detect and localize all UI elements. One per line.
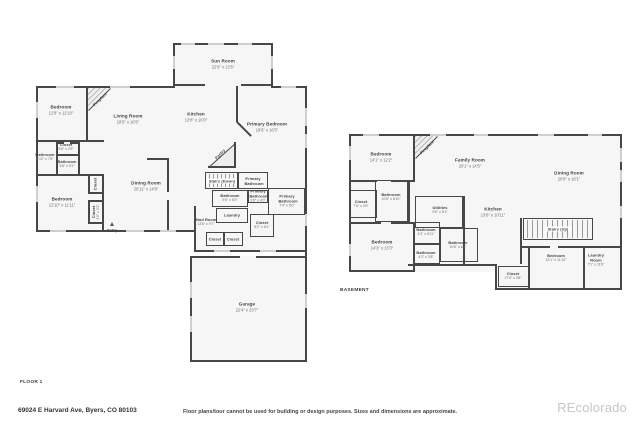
room-dims: 7'6" x 3'6" <box>353 204 368 209</box>
floor1-main-fill <box>36 86 307 232</box>
wall-segment <box>305 254 307 362</box>
room-name: Laundry <box>224 212 240 217</box>
room-label-garage: Garage22'4" x 23'7" <box>236 301 258 312</box>
floor1-title: FLOOR 1 <box>20 380 43 385</box>
window-marker <box>214 250 230 252</box>
window-marker <box>305 214 307 226</box>
wall-segment <box>495 264 497 290</box>
room-name: Closet <box>209 236 222 241</box>
wall-segment <box>234 142 236 168</box>
room-dims: 9'6" x 8'1" <box>432 210 447 215</box>
room-label-primary-bedroom: Primary Bedroom19'6" x 16'5" <box>247 121 287 132</box>
window-marker <box>208 43 224 45</box>
room-label-bedroom: Bedroom14'3" x 13'3" <box>371 239 393 250</box>
door-opening <box>240 256 256 258</box>
room-name: Closet <box>227 236 240 241</box>
room-name: Primary Bathroom <box>245 176 262 186</box>
wall-segment <box>583 246 585 290</box>
address-text: 69024 E Harvard Ave, Byers, CO 80103 <box>18 407 137 414</box>
room-label-bedroom-2: Bedroom12'10" x 11'11" <box>49 196 75 207</box>
window-marker <box>160 230 176 232</box>
window-marker <box>430 134 446 136</box>
room-dims: 12'8" x 12'10" <box>49 110 74 115</box>
room-dims: 22'9" x 13'5" <box>211 64 235 69</box>
wall-segment <box>408 180 410 224</box>
wall-segment <box>349 270 415 272</box>
room-dims: 12'1" x 11'10" <box>546 258 567 263</box>
wall-segment <box>190 256 192 362</box>
window-marker <box>305 108 307 126</box>
room-dims: 17'0" x 3'8" <box>504 276 521 281</box>
room-dims: 8'2" x 6'1" <box>254 225 269 230</box>
window-marker <box>620 206 622 218</box>
room-dims: 7'4" x 8'0" <box>279 204 296 209</box>
wall-segment <box>208 166 236 168</box>
room-dims: 13'8" x 16'0" <box>185 117 207 122</box>
wall-segment <box>36 174 104 176</box>
window-marker <box>238 43 252 45</box>
room-label-bathroom: Bathroom9'6" x 6'0" <box>220 193 239 203</box>
room-label-utilities: Utilities9'6" x 8'1" <box>432 205 447 215</box>
window-marker <box>271 56 273 69</box>
room-label-closet: Closet17'0" x 3'8" <box>504 271 521 281</box>
window-marker <box>620 148 622 162</box>
wall-segment <box>88 200 104 202</box>
room-name: Laundry Room <box>588 253 605 263</box>
room-dims: 22'4" x 23'7" <box>236 307 258 312</box>
wall-segment <box>56 154 78 156</box>
wall-segment <box>194 250 307 252</box>
wall-segment <box>78 142 80 176</box>
window-marker <box>190 282 192 298</box>
window-marker <box>56 86 74 88</box>
room-dims: 12'10" x 11'11" <box>49 202 75 207</box>
window-marker <box>173 56 175 69</box>
room-name: Stairs (Down) <box>209 178 235 183</box>
window-marker <box>588 134 602 136</box>
wall-segment <box>520 218 522 264</box>
room-dims: 20'8" x 18'1" <box>554 176 584 181</box>
room-dims: 14'1" x 12'2" <box>370 157 392 162</box>
window-marker <box>126 230 144 232</box>
room-name: Primary Bathroom <box>250 189 267 199</box>
room-label-bedroom: Bedroom12'1" x 11'10" <box>546 253 567 263</box>
room-name: Entry <box>107 227 117 232</box>
wall-segment <box>88 200 90 224</box>
room-dims: 7'1" x 11'8" <box>588 263 605 268</box>
room-label-bathroom: Bathroom5'10" x 7'8" <box>35 152 54 162</box>
room-label-mud-room: Mud Room13'6" x 9'7" <box>196 217 217 227</box>
room-dims: 20'11" x 14'8" <box>131 186 161 191</box>
room-name: Primary Bathroom <box>279 194 296 204</box>
room-label-laundry-room: Laundry Room7'1" x 11'8" <box>588 253 605 268</box>
room-dims: 13'6" x 9'7" <box>196 222 217 227</box>
wall-segment <box>520 246 550 248</box>
room-dims: 19'6" x 16'5" <box>247 127 287 132</box>
room-dims: 4'2" x 6'11" <box>416 232 435 237</box>
room-label-living-room: Living Room18'5" x 16'5" <box>114 113 143 124</box>
room-label-dining-room: Dining Room20'8" x 18'1" <box>554 170 584 181</box>
window-marker <box>50 230 66 232</box>
wall-segment <box>391 222 415 224</box>
window-marker <box>349 244 351 256</box>
wall-segment <box>413 134 415 180</box>
wall-segment <box>236 86 238 122</box>
room-label-stairs-down: Stairs (Down) <box>207 178 237 183</box>
wall-segment <box>88 192 104 194</box>
window-marker <box>110 86 130 88</box>
room-label-primary-bathroom: Primary Bathroom7'4" x 8'0" <box>279 194 296 209</box>
room-label-closet: Closet8'2" x 6'1" <box>254 220 269 230</box>
room-label-laundry: Laundry <box>224 212 240 217</box>
wall-segment <box>147 158 169 160</box>
room-dims: 5'8" x 5'1" <box>57 164 76 169</box>
wall-segment <box>194 206 196 252</box>
wall-segment <box>167 200 169 232</box>
room-label-sun-room: Sun Room22'9" x 13'5" <box>211 58 235 69</box>
window-marker <box>305 134 307 148</box>
room-dims: 5'10" x 7'8" <box>35 157 54 162</box>
basement-title: BASEMENT <box>340 288 369 293</box>
room-label-entry: Entry <box>107 227 117 232</box>
floorplan-canvas: Sun Room22'9" x 13'5" Bedroom12'8" x 12'… <box>0 0 640 426</box>
window-marker <box>281 86 296 88</box>
room-label-closet: Closet4'0" x 2'2" <box>91 204 101 219</box>
room-label-closet: Closet <box>92 178 97 191</box>
room-dims: 5'8" x 2'5" <box>58 147 73 152</box>
entry-marker-icon <box>110 222 114 226</box>
wall-segment <box>86 86 88 142</box>
room-dims: 13'8" x 10'11" <box>481 212 505 217</box>
room-dims: 10'8" x 8'10" <box>381 197 400 202</box>
room-label-closet: Closet <box>209 236 222 241</box>
room-label-closet: Closet5'8" x 2'5" <box>58 142 73 152</box>
room-label-closet: Closet <box>227 236 240 241</box>
room-name: Stairs (Up) <box>548 226 569 231</box>
room-label-bathroom: Bathroom4'2" x 3'8" <box>416 250 435 260</box>
room-label-bathroom: Bathroom5'8" x 5'1" <box>57 159 76 169</box>
recolorado-watermark: REcolorado <box>557 400 627 415</box>
room-label-closet: Closet7'6" x 3'6" <box>353 199 368 209</box>
window-marker <box>260 250 276 252</box>
wall-segment <box>190 360 307 362</box>
room-dims: 4'0" x 2'2" <box>96 204 101 219</box>
wall-segment <box>167 158 169 192</box>
room-label-bathroom: Bathroom4'2" x 6'11" <box>416 227 435 237</box>
room-name: Closet <box>92 178 97 191</box>
wall-segment <box>88 222 104 224</box>
window-marker <box>538 134 554 136</box>
room-label-primary-bathroom: Primary Bathroom9'6" x 4'0" <box>250 189 267 204</box>
window-marker <box>36 186 38 202</box>
window-marker <box>349 146 351 160</box>
window-marker <box>620 170 622 182</box>
window-marker <box>36 102 38 118</box>
room-label-primary-bathroom: Primary Bathroom <box>245 176 262 186</box>
wall-segment <box>241 84 273 86</box>
room-label-dining-room: Dining Room20'11" x 14'8" <box>131 180 161 191</box>
wall-segment <box>408 264 497 266</box>
room-label-stairs-up: Stairs (Up) <box>546 226 571 231</box>
window-marker <box>190 316 192 332</box>
wall-segment <box>495 288 622 290</box>
room-dims: 9'6" x 6'0" <box>220 198 239 203</box>
room-label-kitchen: Kitchen13'8" x 16'0" <box>185 111 207 122</box>
room-label-bathroom: Bathroom10'8" x 6'3" <box>448 240 467 250</box>
room-label-bedroom-1: Bedroom12'8" x 12'10" <box>49 104 74 115</box>
wall-segment <box>349 180 377 182</box>
disclaimer-text: Floor plans/tour cannot be used for buil… <box>183 409 457 415</box>
room-dims: 10'8" x 6'3" <box>448 245 467 250</box>
wall-segment <box>349 222 381 224</box>
wall-segment <box>558 246 622 248</box>
room-label-family-room: Family Room20'1" x 14'5" <box>455 157 485 168</box>
room-dims: 20'1" x 14'5" <box>455 163 485 168</box>
room-label-kitchen: Kitchen13'8" x 10'11" <box>481 206 505 217</box>
room-dims: 18'5" x 16'5" <box>114 119 143 124</box>
room-dims: 14'3" x 13'3" <box>371 245 393 250</box>
wall-segment <box>173 84 205 86</box>
room-dims: 4'2" x 3'8" <box>416 255 435 260</box>
window-marker <box>181 43 195 45</box>
window-marker <box>305 294 307 308</box>
room-label-bathroom: Bathroom10'8" x 8'10" <box>381 192 400 202</box>
window-marker <box>363 134 379 136</box>
room-label-bedroom: Bedroom14'1" x 12'2" <box>370 151 392 162</box>
window-marker <box>474 134 488 136</box>
room-dims: 9'6" x 4'0" <box>250 199 267 204</box>
